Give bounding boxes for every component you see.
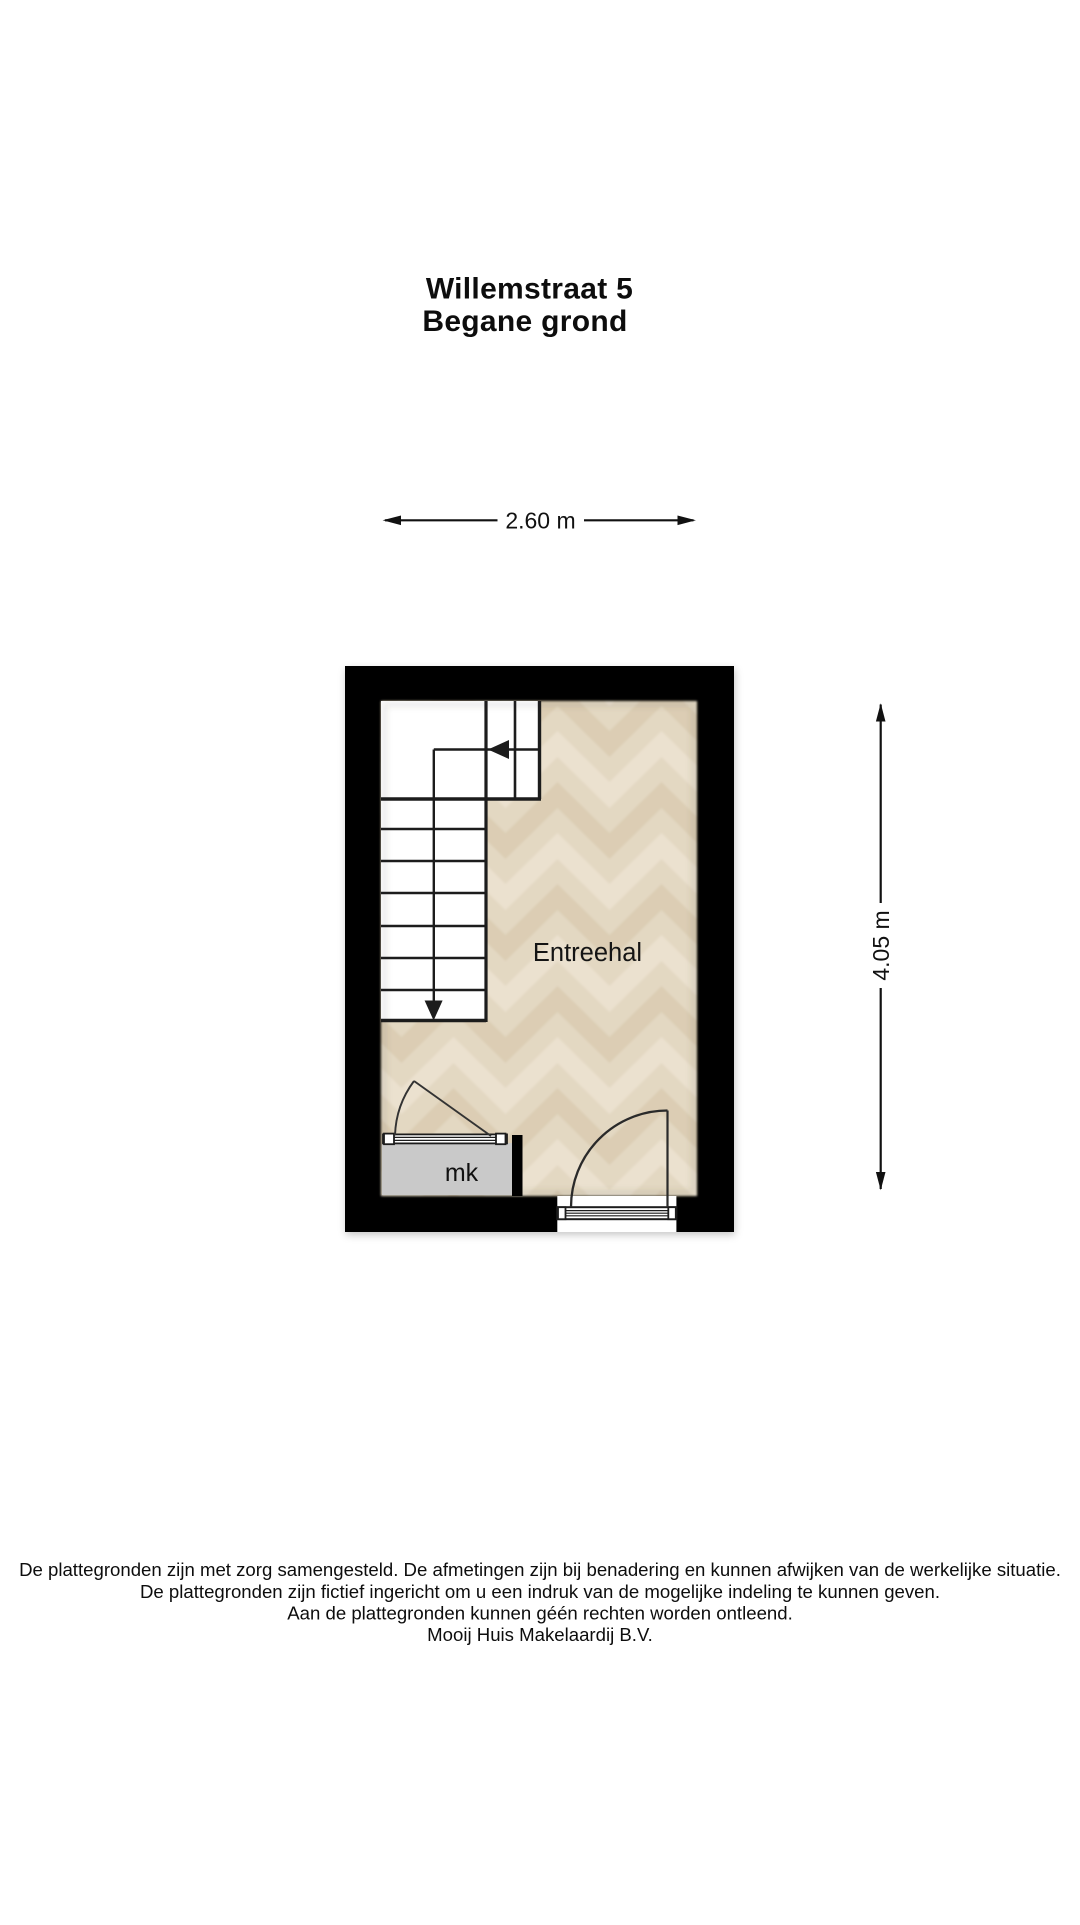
svg-text:mk: mk (445, 1159, 479, 1187)
svg-text:Begane grond: Begane grond (422, 305, 627, 338)
svg-text:2.60 m: 2.60 m (505, 508, 575, 534)
svg-text:De plattegronden zijn met zorg: De plattegronden zijn met zorg samengest… (19, 1559, 1061, 1580)
svg-text:Entreehal: Entreehal (533, 939, 642, 967)
svg-text:Aan de plattegronden kunnen gé: Aan de plattegronden kunnen géén rechten… (287, 1603, 793, 1624)
svg-text:Mooij Huis Makelaardij B.V.: Mooij Huis Makelaardij B.V. (427, 1624, 653, 1645)
svg-text:De plattegronden zijn fictief: De plattegronden zijn fictief ingericht … (140, 1581, 940, 1602)
svg-text:4.05 m: 4.05 m (868, 910, 894, 980)
svg-text:Willemstraat 5: Willemstraat 5 (426, 273, 633, 306)
